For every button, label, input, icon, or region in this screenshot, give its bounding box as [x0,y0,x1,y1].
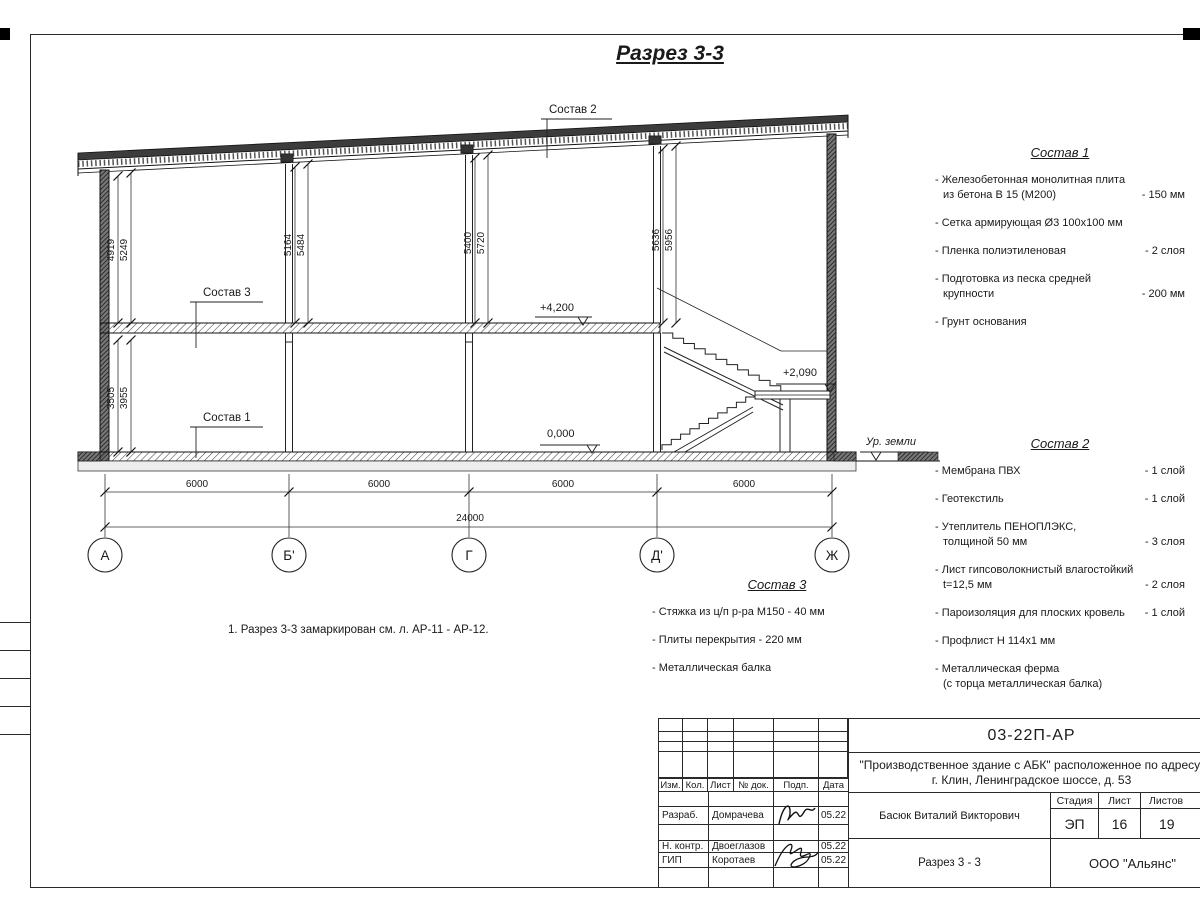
role-gip: ГИП [658,852,709,868]
axis-b: Б' [283,548,294,563]
list-item: - Геотекстиль- 1 слой [935,493,1185,506]
list-item: - Мембрана ПВХ- 1 слой [935,465,1185,478]
sheet-value: 16 [1098,808,1141,839]
list-item: из бетона В 15 (М200)- 150 мм [935,189,1185,202]
dim-3955: 3955 [119,386,130,409]
drawing-name: Разрез 3 - 3 [848,838,1051,888]
list-item: - Лист гипсоволокнистый влагостойкий [935,564,1185,577]
stage-label: Стадия [1050,792,1099,809]
col-list: Лист [707,778,734,792]
list-item: - Металлическая ферма [935,663,1185,676]
vertical-dimensions: 4919 5249 5164 5484 5400 5720 5636 5956 … [106,142,681,457]
role-developer: Разраб. [658,806,709,825]
callout-sostav1: Состав 1 [203,412,251,424]
dim-5720: 5720 [476,231,487,254]
list-title: Состав 1 [965,146,1155,159]
ground-slab [78,452,940,471]
stage-value: ЭП [1050,808,1099,839]
dim-5400: 5400 [463,231,474,254]
list-item: - Металлическая балка [652,662,902,675]
lower-flight [662,397,755,450]
list-sostav-1: Состав 1 - Железобетонная монолитная пли… [935,146,1185,329]
axis-a: А [100,548,109,563]
columns [281,136,661,452]
list-item: t=12,5 мм- 2 слоя [935,579,1185,592]
sheet-label: Лист [1098,792,1141,809]
floor-slab [100,323,660,333]
document-number: 03-22П-АР [848,718,1200,753]
list-title: Состав 2 [965,437,1155,450]
right-wall [827,134,836,462]
list-sostav-3: Состав 3 - Стяжка из ц/п р-ра М150 - 40 … [652,578,902,675]
dim-6000-1: 6000 [186,479,209,490]
axis-d: Д' [651,548,663,563]
dim-24000: 24000 [456,513,484,524]
horizontal-dimensions: 6000 6000 6000 6000 24000 [101,474,837,537]
list-item: - Пароизоляция для плоских кровель- 1 сл… [935,607,1185,620]
dim-5636: 5636 [651,228,662,251]
list-item: - Плиты перекрытия - 220 мм [652,634,902,647]
list-item: крупности- 200 мм [935,288,1185,301]
col-podp: Подп. [773,778,819,792]
dim-3505: 3505 [106,386,117,409]
dim-6000-2: 6000 [368,479,391,490]
list-item: - Профлист Н 114х1 мм [935,635,1185,648]
dim-5164: 5164 [283,233,294,256]
sheets-label: Листов [1140,792,1200,809]
list-sostav-2: Состав 2 - Мембрана ПВХ- 1 слой - Геотек… [935,437,1185,691]
company-name: ООО "Альянс" [1050,838,1200,888]
elevation-2090: +2,090 [783,367,817,379]
revision-grid [658,718,848,778]
dim-5484: 5484 [296,233,307,256]
sheets-value: 19 [1140,808,1200,839]
list-item: - Подготовка из песка средней [935,273,1185,286]
dim-4919: 4919 [106,238,117,261]
soil-hatch [898,452,938,461]
dim-5249: 5249 [119,238,130,261]
col-izm: Изм. [658,778,683,792]
list-item: - Грунт основания [935,316,1185,329]
col-data: Дата [818,778,849,792]
drawing-note: 1. Разрез 3-3 замаркирован см. л. АР-11 … [228,624,489,636]
dim-5956: 5956 [664,228,675,251]
col-doc: № док. [733,778,774,792]
axis-g: Г [465,548,473,563]
list-item: толщиной 50 мм- 3 слоя [935,536,1185,549]
callout-sostav3: Состав 3 [203,287,251,299]
list-item: - Утеплитель ПЕНОПЛЭКС, [935,521,1185,534]
list-title: Состав 3 [682,578,872,591]
col-kol: Кол. [682,778,708,792]
list-item: (с торца металлическая балка) [935,678,1185,691]
name-gip: Коротаев [708,852,774,868]
dim-6000-3: 6000 [552,479,575,490]
axis-markers: А Б' Г Д' Ж [88,538,849,572]
dim-6000-4: 6000 [733,479,756,490]
list-item: - Пленка полиэтиленовая- 2 слоя [935,245,1185,258]
elevation-4200: +4,200 [540,302,574,314]
approver-name: Басюк Виталий Викторович [848,792,1051,839]
signature-developer [773,798,819,832]
list-item: - Сетка армирующая Ø3 100х100 мм [935,217,1185,230]
drawing-sheet: { "page": { "title": "Разрез 3-3", "note… [0,0,1200,900]
signature-control-gip [771,838,821,872]
name-developer: Домрачева [708,806,774,825]
elevation-0000: 0,000 [547,428,575,440]
list-item: - Стяжка из ц/п р-ра М150 - 40 мм [652,606,902,619]
list-item: - Железобетонная монолитная плита [935,174,1185,187]
callout-sostav2: Состав 2 [549,104,597,116]
date-developer: 05.22 [818,806,849,825]
date-gip: 05.22 [818,852,849,868]
project-title: "Производственное здание с АБК" располож… [848,752,1200,793]
left-wall [100,170,109,462]
ground-level-label: Ур. земли [865,436,916,448]
axis-zh: Ж [826,548,839,563]
